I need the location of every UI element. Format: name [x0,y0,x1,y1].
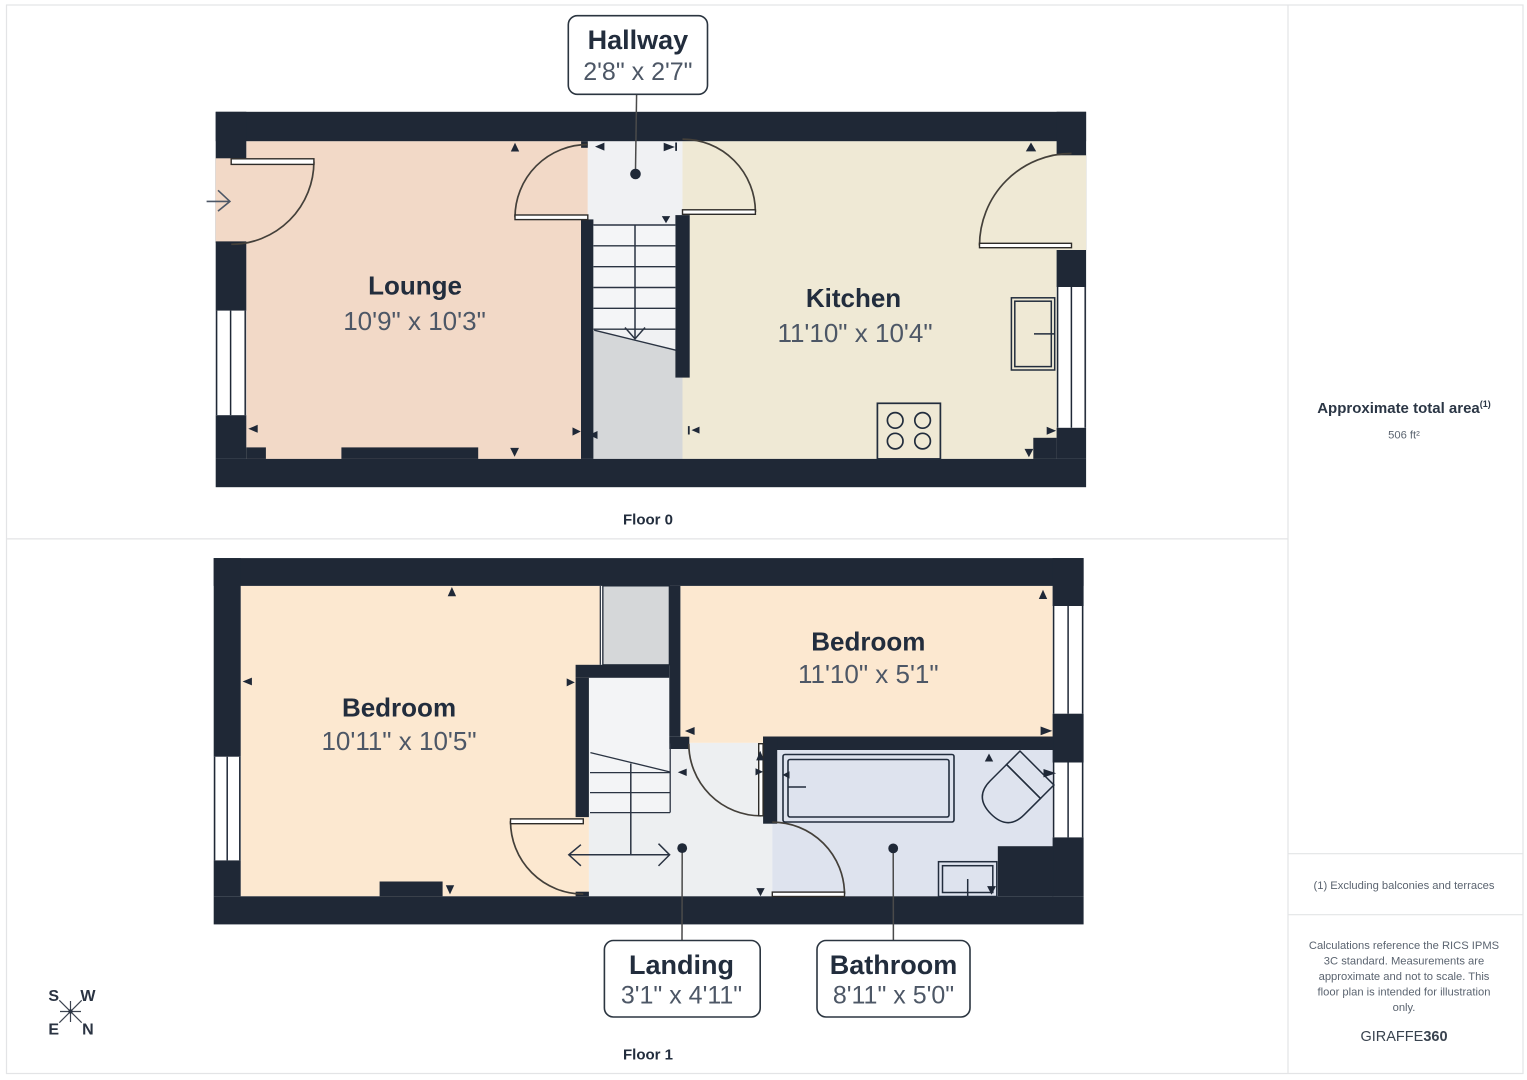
svg-text:E: E [48,1022,59,1039]
svg-text:Approximate total area(1): Approximate total area(1) [1317,399,1491,417]
svg-text:10'11" x 10'5": 10'11" x 10'5" [321,726,476,756]
svg-text:floor plan is intended for ill: floor plan is intended for illustration [1318,987,1491,999]
svg-text:Bedroom: Bedroom [811,627,925,657]
svg-text:W: W [80,988,96,1005]
svg-text:Lounge: Lounge [368,271,462,301]
svg-text:Landing: Landing [629,950,734,980]
svg-text:N: N [82,1022,94,1039]
svg-text:2'8" x 2'7": 2'8" x 2'7" [583,58,692,86]
svg-text:Hallway: Hallway [588,25,689,55]
svg-text:506 ft²: 506 ft² [1388,430,1420,442]
svg-text:3C standard. Measurements are: 3C standard. Measurements are [1324,956,1484,968]
svg-text:GIRAFFE360: GIRAFFE360 [1360,1029,1447,1045]
svg-text:(1) Excluding balconies and te: (1) Excluding balconies and terraces [1314,880,1495,892]
svg-text:Floor 0: Floor 0 [623,512,673,529]
svg-text:only.: only. [1393,1002,1416,1014]
svg-text:11'10" x 5'1": 11'10" x 5'1" [798,659,939,689]
svg-text:Calculations reference the RIC: Calculations reference the RICS IPMS [1309,940,1499,952]
svg-text:Bedroom: Bedroom [342,693,456,723]
svg-text:Kitchen: Kitchen [806,283,901,313]
svg-text:8'11" x 5'0": 8'11" x 5'0" [833,982,954,1010]
svg-text:Floor 1: Floor 1 [623,1047,673,1064]
svg-text:10'9" x 10'3": 10'9" x 10'3" [343,306,486,336]
svg-text:S: S [48,988,59,1005]
svg-text:approximate and not to scale.: approximate and not to scale. This [1319,971,1490,983]
svg-text:3'1" x 4'11": 3'1" x 4'11" [621,982,742,1010]
svg-text:11'10" x 10'4": 11'10" x 10'4" [777,318,932,348]
svg-text:Bathroom: Bathroom [830,950,958,980]
